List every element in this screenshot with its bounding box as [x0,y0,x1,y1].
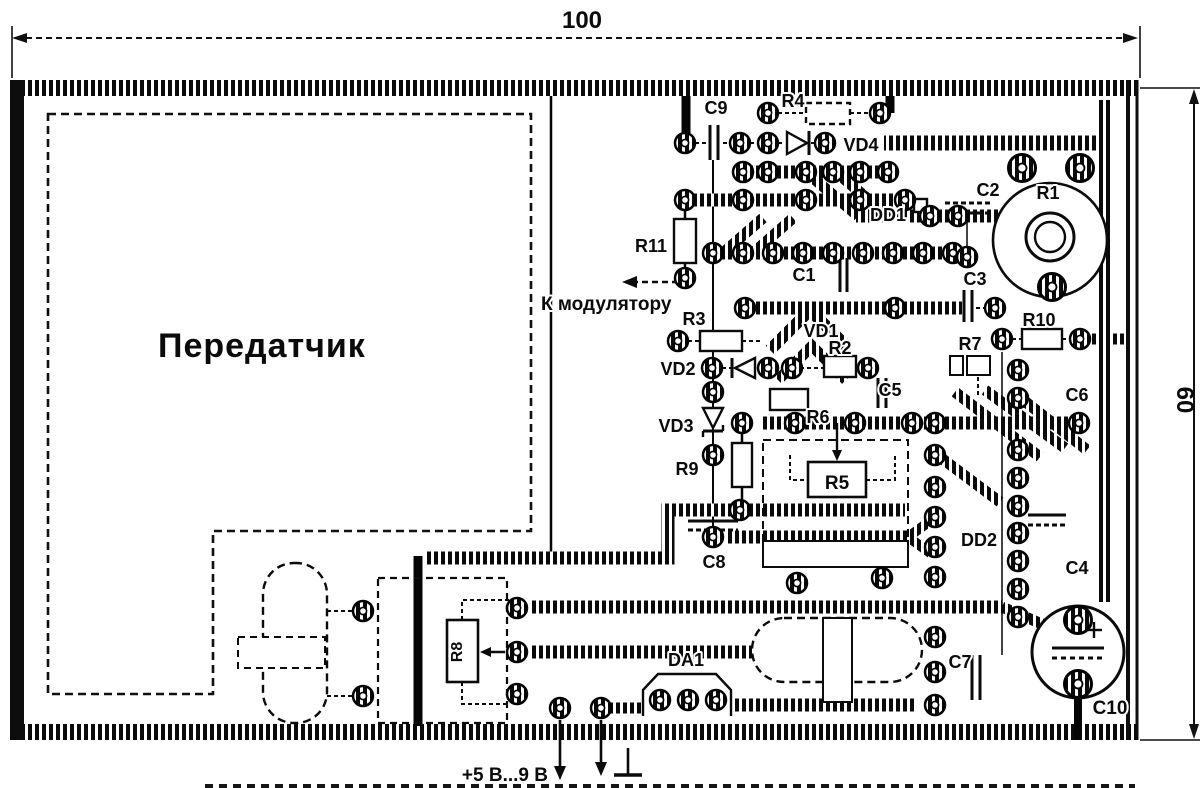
label-c3: C3 [963,269,986,289]
solder-pad [758,162,778,182]
arrowhead-down [1189,724,1199,739]
solder-pad [550,698,570,718]
solder-pad [353,601,373,621]
resistor-r7-body-a [950,356,963,375]
board-border-top [10,80,1140,96]
solder-pad [1008,579,1028,599]
resistor-r6-body [770,389,808,410]
solder-pad [733,162,753,182]
width-dim-label: 100 [562,7,602,34]
transmitter-region-outline [48,114,531,694]
transmitter-label: Передатчик [158,327,366,365]
solder-pad [1008,440,1028,460]
solder-pad [507,642,527,662]
solder-pad [733,190,753,210]
label-c4: C4 [1065,558,1088,578]
solder-pad [1067,155,1094,182]
diode-vd4 [787,131,809,155]
solder-pad [823,243,843,263]
label-r9: R9 [675,459,698,479]
dimension-height: 60 [1140,88,1200,740]
power-label: +5 В...9 В [462,765,548,786]
solder-pad [675,190,695,210]
solder-pad [758,358,778,378]
solder-pad [872,568,892,588]
label-c7: C7 [948,652,971,672]
label-r7: R7 [958,334,981,354]
arrowhead-up [1189,89,1199,104]
component-lead [790,455,808,480]
solder-pad [845,413,865,433]
solder-pad [507,598,527,618]
solder-pad [763,243,783,263]
solder-pad [735,298,755,318]
solder-pad [925,413,945,433]
label-r4: R4 [781,91,804,111]
solder-pad [925,445,945,465]
label-dd2: DD2 [961,530,997,550]
solder-pad [925,567,945,587]
solder-pad [703,445,723,465]
ground-symbol [614,748,642,775]
solder-pad [925,507,945,527]
solder-pad [1065,607,1092,634]
height-dim-label: 60 [1171,387,1198,414]
solder-pad [823,162,843,182]
solder-pad [925,477,945,497]
label-c1: C1 [792,265,815,285]
solder-pad [758,133,778,153]
labels-layer: Передатчик К модулятору +5 В...9 В C9 R4… [158,91,1127,786]
solder-pad [1008,468,1028,488]
solder-pad [793,243,813,263]
trimmer-r5-assembly [763,423,908,567]
solder-pad [913,243,933,263]
solder-pad [353,686,373,706]
solder-pad [883,243,903,263]
label-vd4: VD4 [843,135,878,155]
board-border-left [10,80,24,740]
resistor-r4-body [806,103,850,124]
label-c9: C9 [704,98,727,118]
solder-pad [853,243,873,263]
to-modulator-label: К модулятору [541,294,672,315]
resistor-r9-body [732,443,752,487]
component-lead [866,455,895,480]
label-c8: C8 [702,552,725,572]
component-lead [462,600,509,620]
solder-pad [902,413,922,433]
solder-pad [675,268,695,288]
solder-pad [878,162,898,182]
label-r8: R8 [449,642,466,663]
solder-pad [796,190,816,210]
r8-adjust-arrow [480,647,491,657]
solder-pad [706,690,726,710]
solder-pad [885,298,905,318]
solder-pad [650,690,670,710]
crystal-vertical-outline [238,563,327,723]
solder-pad [870,103,890,123]
label-c5: C5 [878,380,901,400]
label-da1: DA1 [668,650,704,670]
label-r10: R10 [1022,310,1055,330]
solder-pad [730,133,750,153]
solder-pad [1008,551,1028,571]
label-dd1: DD1 [870,205,906,225]
label-r6: R6 [806,407,829,427]
solder-pad [1008,360,1028,380]
solder-pad [732,413,752,433]
solder-pad [703,243,723,263]
resistor-r11-body [674,219,696,263]
solder-pad [992,329,1012,349]
solder-pad [796,162,816,182]
solder-pad [733,243,753,263]
diode-vd2 [732,358,755,378]
solder-pad [1008,388,1028,408]
solder-pad [730,500,750,520]
label-r3: R3 [682,309,705,329]
label-r5: R5 [825,473,850,494]
label-c2: C2 [976,180,999,200]
pcb-layout-screenshot: 100 60 [0,0,1200,788]
pcb-layout-diagram: 100 60 [0,0,1200,788]
solder-pad [703,527,723,547]
arrowhead-left [12,33,27,43]
to-modulator-arrow [622,276,676,288]
r5-adjust-arrow [832,450,842,461]
label-r1: R1 [1036,183,1059,203]
solder-pad [858,358,878,378]
solder-pad [985,298,1005,318]
solder-pad [702,358,722,378]
label-c6: C6 [1065,385,1088,405]
solder-pad [948,206,968,226]
solder-pad [850,162,870,182]
solder-pad [1039,274,1066,301]
crystal-horizontal-outline [752,618,922,702]
solder-pad [668,331,688,351]
solder-pad [925,627,945,647]
solder-pad [1008,496,1028,516]
solder-pad [920,206,940,226]
solder-pad [850,190,870,210]
label-c10: C10 [1093,698,1128,719]
component-lead [462,682,509,704]
solder-pad [758,103,778,123]
solder-pad [1008,607,1028,627]
solder-pad [591,698,611,718]
resistor-r3-body [700,331,742,351]
solder-pad [1065,671,1092,698]
solder-pad [785,413,805,433]
solder-pad [1069,413,1089,433]
solder-pad [1009,155,1036,182]
solder-pad [1070,329,1090,349]
solder-pad [678,690,698,710]
solder-pad [925,662,945,682]
solder-pad [703,382,723,402]
solder-pad [1008,523,1028,543]
label-vd2: VD2 [660,359,695,379]
solder-pad [925,695,945,715]
label-r2: R2 [828,338,851,358]
label-vd3: VD3 [658,416,693,436]
solder-pad [782,358,802,378]
solder-pad [957,247,977,267]
solder-pad [815,133,835,153]
dimension-width: 100 [12,7,1140,78]
solder-pad [507,684,527,704]
arrowhead-right [1123,33,1138,43]
copper-trace [940,457,1000,502]
board-border-bottom [10,724,1140,740]
solder-pad [675,133,695,153]
label-r11: R11 [635,236,667,256]
resistor-r2-body [824,356,856,377]
solder-pad [787,573,807,593]
resistor-r7-body-b [967,356,990,375]
resistor-r10-body [1022,329,1062,349]
solder-pad [925,537,945,557]
